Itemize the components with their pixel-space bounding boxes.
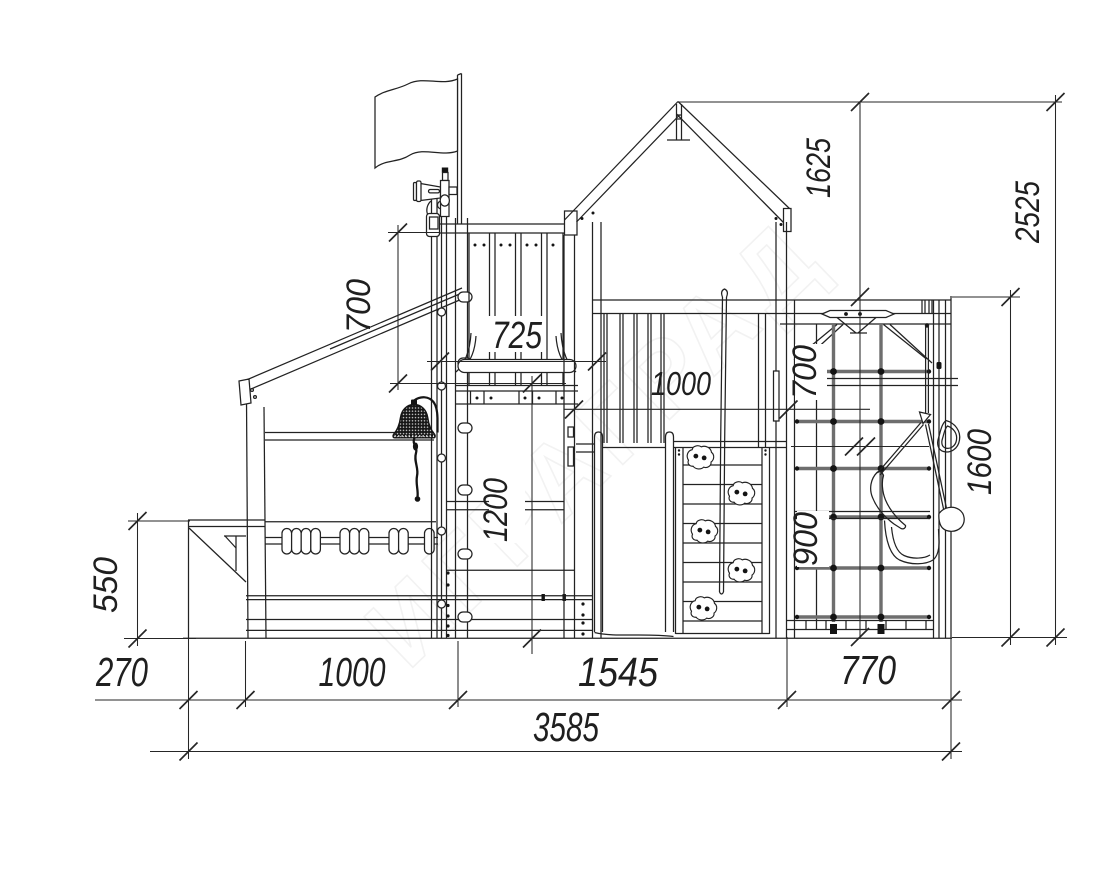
svg-text:1600: 1600 xyxy=(961,429,999,495)
svg-text:900: 900 xyxy=(787,512,825,566)
svg-text:770: 770 xyxy=(840,647,896,693)
svg-text:700: 700 xyxy=(786,345,824,399)
svg-text:550: 550 xyxy=(87,557,125,613)
svg-text:3585: 3585 xyxy=(533,704,599,750)
svg-text:725: 725 xyxy=(492,315,543,357)
svg-text:1625: 1625 xyxy=(800,138,838,198)
svg-text:1000: 1000 xyxy=(651,365,712,402)
svg-text:1000: 1000 xyxy=(319,649,386,695)
svg-text:700: 700 xyxy=(340,279,378,333)
svg-text:2525: 2525 xyxy=(1009,181,1047,244)
svg-text:1545: 1545 xyxy=(578,649,658,695)
svg-text:1200: 1200 xyxy=(477,478,515,542)
svg-text:270: 270 xyxy=(95,649,148,695)
